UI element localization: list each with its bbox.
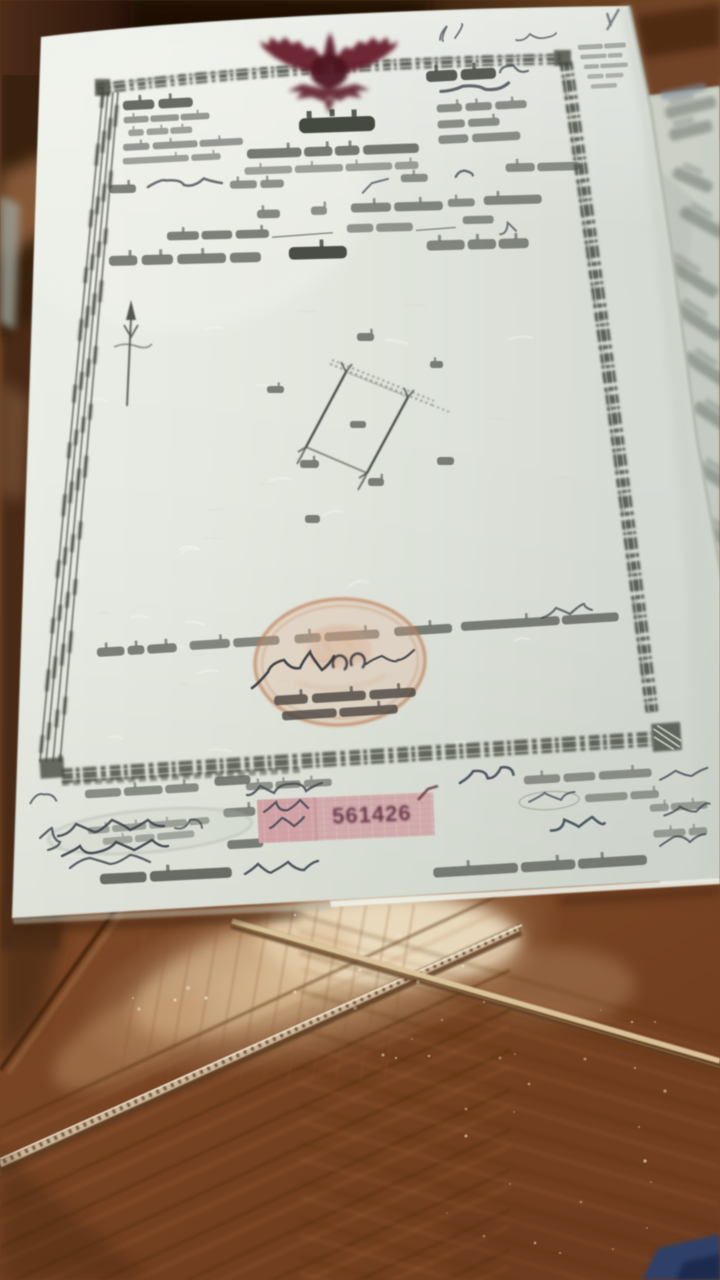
svg-text:561426: 561426 — [332, 800, 412, 828]
